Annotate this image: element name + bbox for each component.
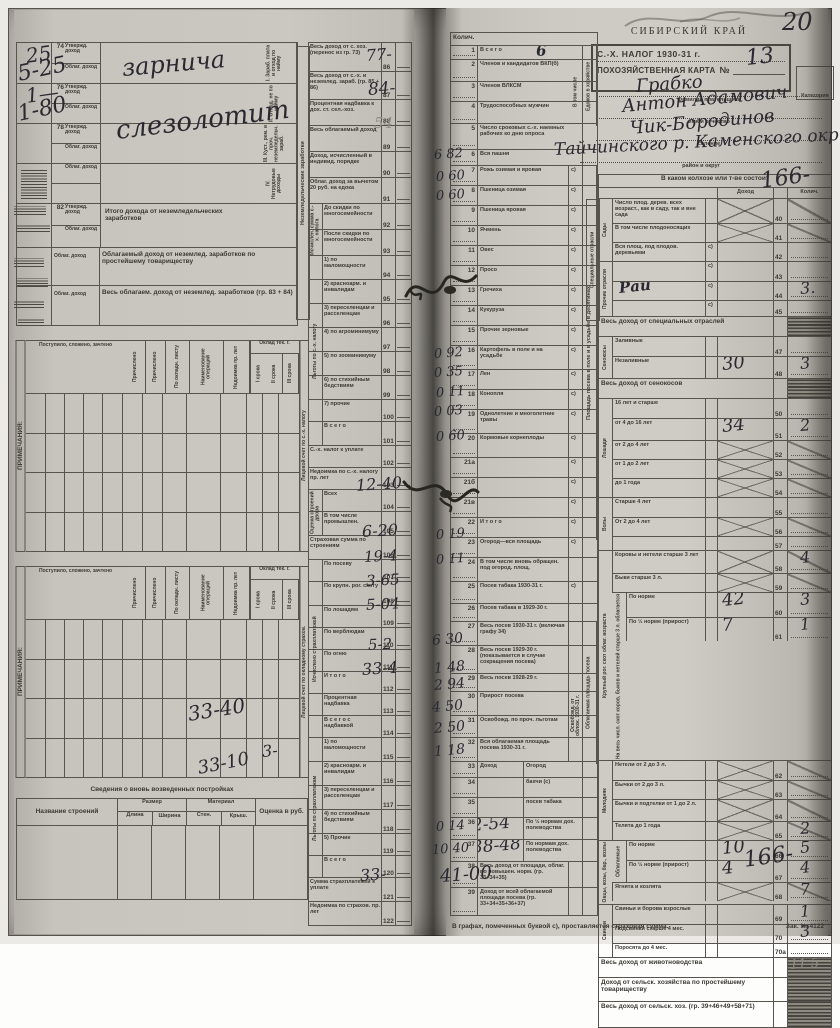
crop-flag: с) [568,226,582,245]
row-label: После скидки по многосемейности [323,230,381,255]
row-number: 45 [773,301,787,316]
value-line [395,72,411,99]
buildings-cell [151,826,185,899]
row-number: 58 [773,551,787,573]
hand-note: 1 18 [433,741,465,760]
row-label: Членов и кандидатов ВКП(б) [477,60,582,81]
hand-note: Раи [618,282,651,296]
value-line [395,902,411,925]
mid-row: Облаг. доход за вычетом 20 руб. на едока… [309,177,411,203]
row-number: 2 [451,60,477,81]
account-vertical: Лицевой счет по с.-х. налогу [300,340,309,552]
ledger-cell [122,620,142,659]
material-sub: Стен.Крыш. [187,812,255,825]
note-label: Облагаемые [612,841,626,882]
margin-cell [17,124,51,163]
sowing-row: 34бахчи (с) [451,777,597,797]
side-zone [582,762,597,777]
row-label: 1) по маломощности [323,738,381,761]
hand-note: 5-2 [368,635,393,654]
ledger-cell [83,394,102,433]
hand-note: 6 82 [433,146,463,163]
crop-flag: с) [568,410,582,433]
value-line [395,716,411,737]
len-header: Длина [118,812,152,825]
hatch-stamp [16,224,50,232]
value-cell [717,761,773,780]
hand-note: 6 30 [431,630,463,649]
group-label: Лошади [599,399,612,497]
row-number: 117 [381,786,395,809]
row-label: Огород—вся площадь [477,538,568,557]
qty-shaded [787,317,831,336]
mid-row: 1) по маломощности94 [309,255,411,279]
sowing-row: 32Вся облагаемая площадь посева 1930-31 … [451,737,597,761]
summary-label: Весь доход от сенокосов [599,379,773,398]
ledger-header-row: Поступило, сложено, зачтеноПричисленоПри… [26,341,299,393]
value-cell [717,498,773,517]
row-number: 93 [381,230,395,255]
livestock-row: от 4 до 16 лет34512 [612,418,831,440]
row-label: Весь посев 1929-30 г. (показывается в сл… [477,646,568,673]
row-number: 98 [381,352,395,375]
crop-label: И т о г о [477,518,568,537]
srok-row: I срокаII срокаIII срока [251,580,299,619]
qty-cell: 4 [787,551,831,573]
row-number: 4 [451,102,477,123]
ledger-cell [220,394,246,433]
crop-label: Овес [477,246,568,265]
ledger-cell [262,394,278,433]
binding-thread-icon [400,452,480,524]
hand-note: 3 [799,357,811,373]
value-cell [717,262,773,281]
qty-shaded [787,978,831,1001]
hand-note: 33- [359,864,386,885]
row-flag [705,224,717,242]
crop-flag: с) [568,166,582,185]
ledger-cell [64,620,83,659]
ledger-cell [45,620,64,659]
note-block: ОблагаемыеПо норме10665По ½ норме (приро… [612,841,831,882]
livestock-row: с)43 [612,262,831,281]
scanned-document: Неземледельческие заработки 74Утвержд. д… [0,0,840,944]
livestock-row: Вся площ. под плодов. деревьямис)42 [612,242,831,261]
row-number: 52 [773,441,787,459]
summary-label: Весь доход от животноводства [599,958,773,977]
row-number: 63 [773,781,787,799]
row-number: 104 [381,490,395,511]
qty-cell [787,944,831,957]
crop-flag: с) [568,346,582,369]
row-flag [705,518,717,536]
row-label: Процентная надбавка [323,694,381,715]
buildings-header: Название строенийРазмерДлинаШиринаМатери… [17,799,307,825]
livestock-row: Бычки и подтелки от 1 до 2 л.64 [612,799,831,821]
row-flag: с) [705,243,717,261]
row-label: В том числе плодоносящих [612,224,705,242]
row-number [773,317,787,336]
side-zone [582,818,597,839]
ledger-cell [26,739,45,778]
ledger-cell [83,739,102,778]
approved-label: Утвержд. доход [64,43,100,63]
taxable-area-vertical: Облагаемая площадь посева [582,621,597,764]
row-flag [705,593,717,617]
row-label: 6) по стихийным бедствиям [323,376,381,399]
side-zone [582,778,597,797]
postuplo-header: Поступило, сложено, зачтено [26,341,126,393]
ledger-cell [102,473,122,512]
side-zone [582,862,597,887]
value-line [395,328,411,351]
notes-vertical: ПРИМЕЧАНИЯ: [16,340,26,552]
group-block: СенокосыЗаливные47Незаливные30483 [599,336,831,378]
hatch-stamp [16,278,48,287]
row-number: 69 [773,905,787,924]
crop-row: 19Однолетние и многолетние травыс) [451,409,597,433]
ledger-cell [246,620,262,659]
mid-row: В с е г о101 [309,421,411,445]
value-line [395,178,411,203]
approved-top: 82Утвержд. доход [52,204,100,225]
value-line [395,834,411,855]
row-label: 2) красноарм. и инвалидам [323,280,381,303]
row-number: 94 [381,256,395,279]
row-label: Заливные [612,337,705,356]
row-label [477,778,523,797]
summary-row: Доход от сельск. хозяйства по простейшем… [599,977,831,1001]
row-label: Весь облагаемый доход [309,126,381,151]
earnings-pair-row: Облаг. доходIV. Нетрудовые доходы [17,163,297,203]
ledger-cell [102,513,122,552]
hatch-stamp [18,318,44,326]
ledger-cell [162,699,186,738]
mid-row: До скидки по многосемейности92 [309,203,411,229]
estimate-header: Оценка в руб. [255,799,307,825]
mid-row: 5) Прочие119 [309,833,411,855]
hand-note: 38-48 [477,840,522,858]
row-label: По нормам дох. полеводства [523,840,582,861]
crop-flag: с) [568,390,582,409]
ledger-cell [278,513,294,552]
row-flag [705,441,717,459]
value-line [395,738,411,761]
row-number: 57 [773,537,787,550]
ledger-cell [83,473,102,512]
hand-note: 54 [374,114,393,132]
hand-note: 3 [799,593,811,609]
srok-header: I срока [251,580,267,619]
row-label: По норме [626,841,705,860]
row-number: 56 [773,518,787,536]
row-label: Коровы и нетели старше 3 лет [612,551,705,573]
size-sub: ДлинаШирина [118,812,186,825]
crop-label [477,498,568,517]
exempt-note-vertical: Освобожд. от облож. 1930-31 г. [570,691,583,739]
rot-header: Наименование операций [190,567,224,619]
group-label: Сенокосы [599,337,612,378]
side-zone [582,798,597,817]
row-flag [705,618,717,641]
ledger-cell [246,699,262,738]
taxed-bottom [52,183,100,203]
ledger-cell [162,660,186,699]
card-no-label: № [720,65,730,75]
ledger-cell [64,699,83,738]
note-label: На весь числ. скот коров, быков и нетеле… [612,593,626,760]
mid-row: Процентная надбавка113 [309,693,411,715]
row-label: Доход [477,762,523,777]
ledger-cell [102,660,122,699]
qty-cell [787,781,831,799]
income-livestock-block: В каком колхозе или т-ве состоитДоходКол… [598,174,832,1028]
row-label: Свиньи и борова взрослые [612,905,705,924]
livestock-row: По норме10665 [626,841,831,860]
crop-label: Кормовые корнеплоды [477,434,568,457]
row-number: 55 [773,498,787,517]
value-line [395,878,411,901]
hand-note: 7 [799,883,811,899]
name-header: Название строений [17,799,117,825]
ledger-cell [162,739,186,778]
ledger-cell [220,513,246,552]
ledger-cell [102,620,122,659]
ledger-cell [142,660,162,699]
qty-cell [787,574,831,592]
value-cell [717,905,773,924]
hand-note: 0 60 [435,428,465,445]
right-page: СИБИРСКИЙ КРАЙ С.-Х. НАЛОГ 1930-31 г. ПО… [446,8,828,936]
ledger-body-row [26,472,299,512]
buildings-body [17,825,307,899]
row-label: 4) по стихийным бедствиям [323,810,381,833]
value-cell [717,479,773,497]
row-label: Доход, исчисленный в индивид. порядке [309,152,381,177]
crop-row: 18Конопляс) [451,389,597,409]
group-label: Волы [599,498,612,550]
livestock-row: Свиньи и борова взрослые691 [612,905,831,924]
row-number: 60 [773,593,787,617]
group-label: Крупный рог. скот облаг. возраста [599,551,612,760]
buildings-cell [117,826,151,899]
mid-group-label: Льготы по страхплатежам [309,737,322,879]
row-label: Ягнята и козлята [612,883,705,901]
card-no-line [733,74,785,75]
group-block: Крупный рог. скот облаг. возрастаКоровы … [599,550,831,760]
hand-note: 4 [799,861,811,877]
group-block: СадыЧисло плод. дерев. всех возраст., ка… [599,198,831,261]
row-number: 40 [773,199,787,223]
row-number: 97 [381,328,395,351]
ledger-cell [220,620,246,659]
qty-cell [787,243,831,261]
ledger-cell [45,394,64,433]
ledger-cell [262,473,278,512]
rot-header: Недоимка пр. лет [224,341,250,393]
row-number: 47 [773,337,787,356]
ledger-cell [278,473,294,512]
hand-note: 3 [799,925,811,941]
row-label: Бычки от 2 до 3 л. [612,781,705,799]
margin-cell [17,164,51,203]
mid-row: 1) по маломощности115 [309,737,411,761]
row-number: 64 [773,800,787,821]
group-block: ВолыСтарше 4 лет55От 2 до 4 лет5657 [599,497,831,550]
row-flag [705,337,717,356]
row-label [612,262,705,281]
center-text: Облагаемый доход от неземлед. заработков… [99,248,297,285]
approved-label: Утвержд. доход [64,84,100,103]
livestock-row: Телята до 1 года652 [612,821,831,840]
sowing-row: 27Весь посев 1930-31 г. (включая графу 3… [451,621,597,645]
ledger-cell [186,513,220,552]
sowing-row: 35посев табака [451,797,597,817]
hand-note: 0 19 [435,526,465,543]
ledger-cell [64,473,83,512]
row-flag [705,537,717,550]
group-rows: с)43Раис)443.с)45 [612,262,831,316]
qty-cell [787,498,831,517]
value-line [395,786,411,809]
crop-row: 16Картофель в поле и на усадьбес) [451,345,597,369]
summary-row: Весь доход от сенокосов [599,378,831,398]
row-flag [568,888,582,915]
value-cell [717,243,773,261]
mid-row: По верблюдам110 [309,627,411,649]
value-line [395,400,411,421]
srok-header: II срока [267,580,283,619]
value-line [395,100,411,125]
hand-note: 5 [799,841,811,857]
group-block: Лошади16 лет и старше50от 4 до 16 лет345… [599,398,831,497]
value-cell [717,282,773,300]
qty-cell [787,460,831,478]
binding-thread-icon [400,250,480,322]
row-label: Членов ВЛКСМ [477,82,582,101]
row-number: 41 [773,224,787,242]
row-label: 2) красноарм. и инвалидам [323,762,381,785]
livestock-row: от 2 до 4 лет52 [612,440,831,459]
ledger-cell [186,660,220,699]
value-line [395,422,411,445]
value-line [395,204,411,229]
mid-row: 7) прочие100 [309,399,411,421]
buildings-cell [219,826,253,899]
row-number: 101 [381,422,395,445]
value-cell: 30 [717,357,773,378]
taxed-label: Облаг. доход [51,286,99,325]
hand-note: 1 [799,618,811,634]
center-cell: Итого дохода от неземледельческих зарабо… [100,204,253,247]
crop-flag: с) [568,186,582,205]
row-number: 44 [773,282,787,300]
approved-col: 78Утвержд. доходОблаг. доход [51,124,100,163]
ledger-cell [122,513,142,552]
notes-vertical: ПРИМЕЧАНИЯ: [16,566,26,778]
hand-note: 4 [721,861,735,879]
mid-row: Недоимка по страхов. пр. лет122 [309,901,411,925]
section-label: I. Зараб. плата и отход по найму [253,43,297,83]
row-label: Прирост посева [477,692,568,715]
group-block: МолоднякНетели от 2 до 3 л.62Бычки от 2 … [599,760,831,840]
hand-note: 5-04 [366,594,401,614]
ledger-cell [64,660,83,699]
row-label: Доход от всей облагаемой площади посева … [477,888,568,915]
value-line [395,126,411,151]
row-label [477,798,523,817]
center-cell [100,164,253,203]
ledger-cell [186,394,220,433]
group-label: Прочие отрасли [599,262,612,316]
livestock-row: с)45 [612,300,831,316]
qty-cell [787,262,831,281]
group-rows: Коровы и нетели старше 3 лет584Быки стар… [612,551,831,760]
approved-top: 78Утвержд. доход [52,124,100,143]
sowing-row: 28Весь посев 1929-30 г. (показывается в … [451,645,597,673]
mid-row: 2) красноарм. и инвалидам116 [309,761,411,785]
center-text: Итого дохода от неземледельческих зарабо… [103,205,251,225]
wall-header: Стен. [187,812,221,825]
hand-note: 12-40 [355,473,402,495]
taxed-bottom: Облаг. доход [52,225,100,247]
ledger-cell [64,434,83,473]
value-line [395,694,411,715]
ledger-cell [142,620,162,659]
row-number: 82 [52,204,64,225]
ledger-cell [186,434,220,473]
sowing-row: 29Весь посев 1928-29 г. [451,673,597,691]
mid-row: 5) по зооминимуму98 [309,351,411,375]
row-number: 115 [381,738,395,761]
row-label: В том числе вновь обращен. под огород. п… [477,558,568,581]
crop-label: Лен [477,370,568,389]
row-label: до 1 года [612,479,705,497]
value-cell [717,551,773,573]
row-label: Число плод. дерев. всех возраст., как в … [612,199,705,223]
qty-cell [787,518,831,536]
row-number: 1 [451,46,477,59]
value-line [395,43,411,71]
srok-row: I срокаII срокаIII срока [251,354,299,393]
row-number: 113 [381,694,395,715]
row-number: 90 [381,152,395,177]
mid-row: 4) по стихийным бедствиям118 [309,809,411,833]
note-block: На весь числ. скот коров, быков и нетеле… [612,592,831,760]
qty-header-row: Колич. [451,33,597,45]
row-number: 35 [451,798,477,817]
srok-header: II срока [267,354,283,393]
group-label: Овцы, козы, бар., козлы [599,841,612,903]
ledger-cell [278,739,294,778]
ledger-cell [64,394,83,433]
sowing-row: 23Огород—вся площадьс) [451,537,597,557]
row-flag [568,604,582,621]
value-line [395,152,411,177]
earnings-single-row: Облаг. доходВесь облагаем. доход от незе… [17,285,297,325]
row-flag: с) [705,282,717,300]
mid-group-label: Льготы по с.-х. налогу [309,255,322,447]
approved-col: 82Утвержд. доходОблаг. доход [51,204,100,247]
crop-row: 9Пшеница яроваяс) [451,205,597,225]
crop-label: Просо [477,266,568,285]
srok-header: III срока [283,354,299,393]
row-label: В с е г о с надбавкой [323,716,381,737]
row-label: Трудоспособных мужчин [477,102,582,123]
livestock-row: Быки старше 3 л.59 [612,573,831,592]
group-rows: Нетели от 2 до 3 л.62Бычки от 2 до 3 л.6… [612,761,831,840]
qty-header: Колич. [451,33,495,45]
